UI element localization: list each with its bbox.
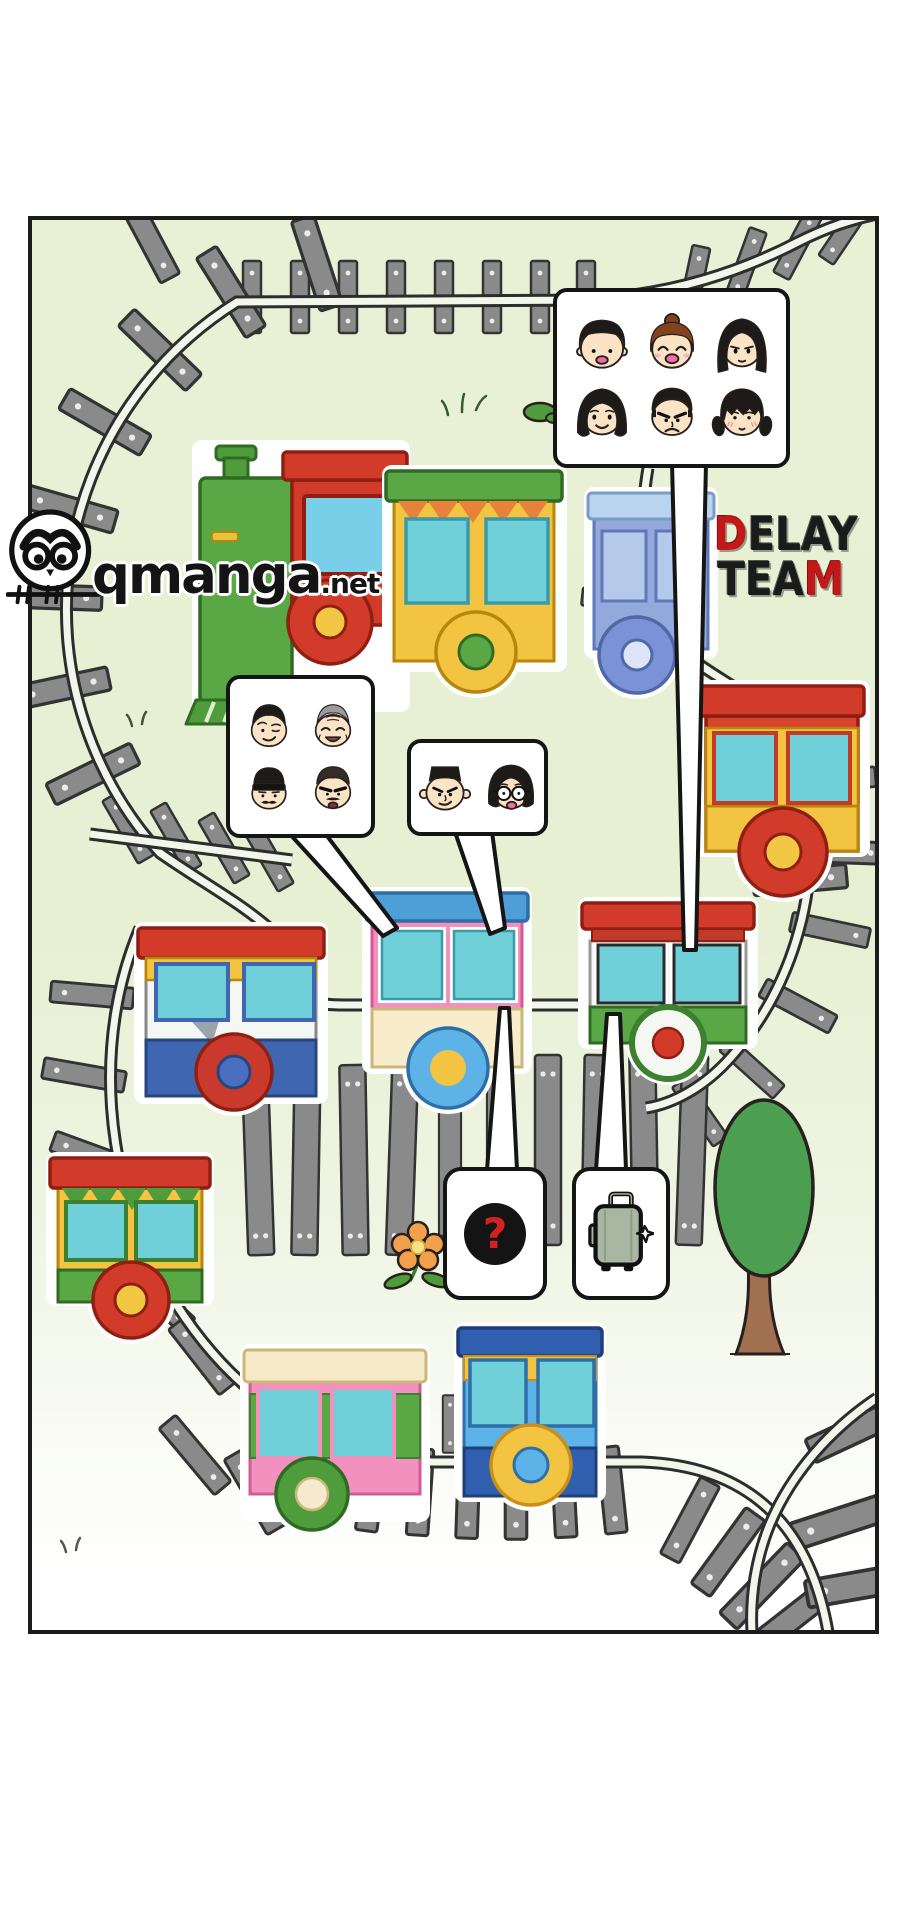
mystery-disc: ? <box>464 1203 526 1265</box>
train-car-blue-white <box>134 922 328 1116</box>
suitcase-icon <box>588 1188 654 1280</box>
logo-line-team: TEAM <box>714 557 858 602</box>
question-mark: ? <box>483 1213 507 1255</box>
face-man-smirk-icon <box>241 698 297 754</box>
train-car-blue <box>454 1322 606 1511</box>
logo-line-delay: DELAY <box>714 512 858 557</box>
tree-icon <box>715 1100 813 1354</box>
speech-bubble-mystery: ? <box>443 1167 547 1300</box>
owl-logo-icon <box>6 506 102 612</box>
train-car-green-yellow <box>382 465 567 698</box>
watermark-site: qmanga <box>92 545 320 606</box>
face-oldman-gray-icon <box>305 698 361 754</box>
face-woman-hairbun-icon <box>640 312 704 376</box>
face-man-beanie-icon <box>241 760 297 816</box>
watermark-text: qmanga.net <box>92 549 379 602</box>
face-boy-bowlcut-icon <box>570 312 634 376</box>
speech-bubble-passengers <box>553 288 790 468</box>
delay-team-logo: DELAY TEAM <box>714 512 858 602</box>
face-woman-midhair-icon <box>570 380 634 444</box>
comic-page: ? qmanga.ne <box>0 0 900 1913</box>
face-man-buzzcut-icon <box>305 760 361 816</box>
face-woman-longhair-icon <box>710 312 774 376</box>
face-man-angry-icon <box>640 380 704 444</box>
face-girl-pigtails-icon <box>710 380 774 444</box>
speech-bubble-luggage <box>572 1167 670 1300</box>
comic-panel: ? <box>28 216 879 1634</box>
face-man-flattop-icon <box>415 758 475 818</box>
face-woman-bob-glasses-icon <box>481 758 541 818</box>
speech-bubble-couple <box>407 739 548 836</box>
train-car-pink-green <box>240 1344 430 1536</box>
speech-bubble-crew <box>226 675 375 838</box>
watermark-tld: .net <box>320 567 379 600</box>
